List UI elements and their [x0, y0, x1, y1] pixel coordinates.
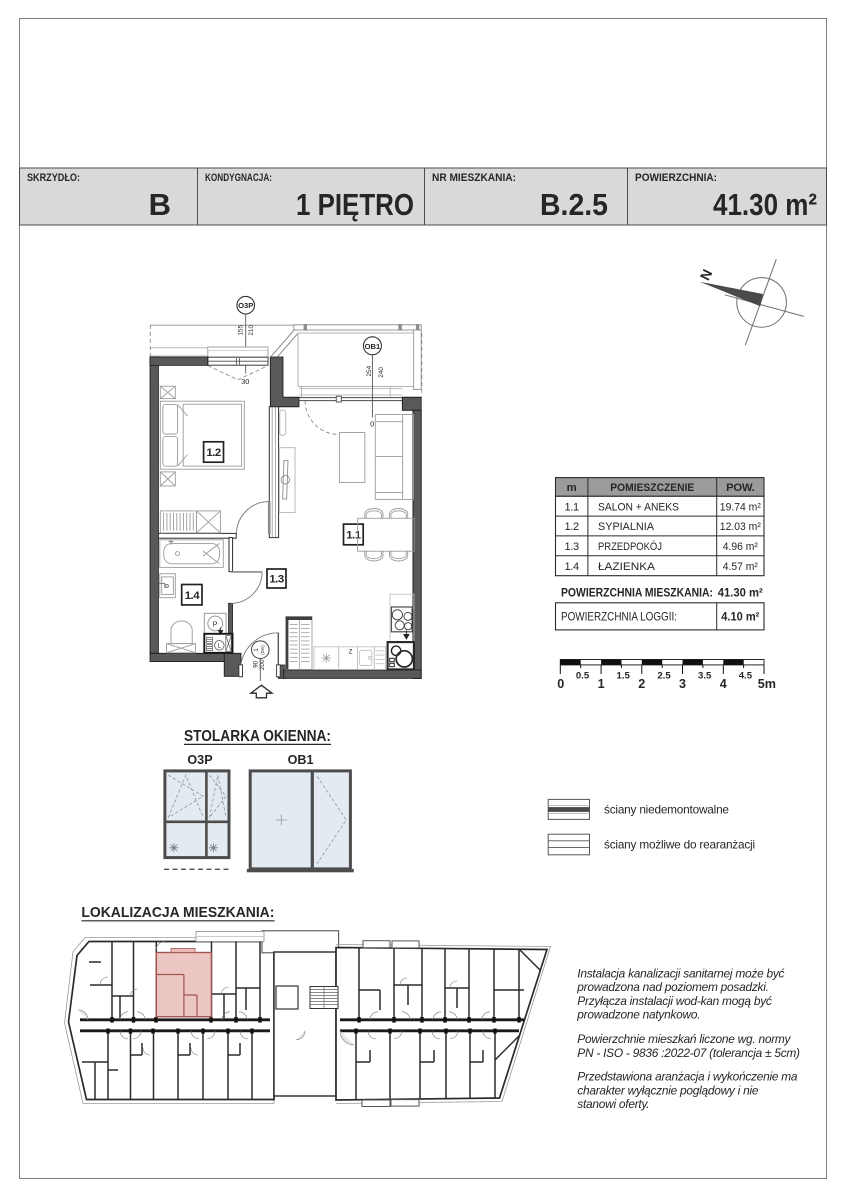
svg-text:210: 210 — [248, 325, 255, 336]
svg-text:3.5: 3.5 — [698, 671, 712, 682]
svg-text:1.2: 1.2 — [206, 447, 220, 459]
svg-text:4.10 m²: 4.10 m² — [721, 610, 759, 624]
svg-text:POWIERZCHNIA:: POWIERZCHNIA: — [635, 172, 717, 184]
svg-text:PN - ISO - 9836 :2022-07 (tole: PN - ISO - 9836 :2022-07 (tolerancja ± 5… — [577, 1046, 800, 1060]
svg-text:POW.: POW. — [726, 482, 754, 494]
svg-text:4.57 m²: 4.57 m² — [723, 561, 758, 573]
svg-text:41.30 m²: 41.30 m² — [713, 187, 817, 222]
svg-text:0: 0 — [370, 420, 374, 429]
svg-text:(Dm): (Dm) — [260, 645, 265, 655]
svg-text:19.74 m²: 19.74 m² — [720, 501, 761, 513]
svg-text:254: 254 — [366, 365, 373, 376]
svg-text:1.1: 1.1 — [564, 501, 579, 513]
svg-text:KONDYGNACJA:: KONDYGNACJA: — [205, 172, 272, 184]
svg-text:1.2: 1.2 — [564, 521, 579, 533]
svg-text:B.2.5: B.2.5 — [540, 187, 608, 222]
svg-text:P: P — [213, 620, 218, 629]
svg-text:4.96 m²: 4.96 m² — [723, 541, 758, 553]
svg-text:240: 240 — [378, 367, 385, 378]
svg-text:POMIESZCZENIE: POMIESZCZENIE — [610, 482, 694, 494]
svg-text:30: 30 — [241, 377, 249, 386]
svg-text:OB1: OB1 — [288, 753, 314, 767]
svg-text:155: 155 — [237, 325, 244, 336]
svg-text:2: 2 — [638, 677, 645, 691]
svg-text:Z: Z — [349, 650, 353, 656]
svg-text:B: B — [149, 187, 171, 222]
svg-text:3: 3 — [679, 677, 686, 691]
svg-text:LOKALIZACJA MIESZKANIA:: LOKALIZACJA MIESZKANIA: — [81, 905, 274, 921]
svg-text:m: m — [567, 482, 577, 494]
svg-text:5m: 5m — [758, 677, 776, 691]
svg-text:stanowi oferty.: stanowi oferty. — [577, 1097, 649, 1111]
svg-text:4.5: 4.5 — [739, 671, 753, 682]
svg-text:ściany możliwe do rearanżacji: ściany możliwe do rearanżacji — [604, 838, 755, 852]
svg-text:41.30 m²: 41.30 m² — [718, 586, 763, 600]
svg-text:SYPIALNIA: SYPIALNIA — [598, 521, 654, 533]
svg-text:STOLARKA OKIENNA:: STOLARKA OKIENNA: — [184, 728, 331, 745]
svg-text:1: 1 — [253, 648, 260, 652]
svg-text:1.1: 1.1 — [346, 530, 361, 542]
svg-text:2.5: 2.5 — [657, 671, 671, 682]
svg-text:Instalacja kanalizacji sanitar: Instalacja kanalizacji sanitarnej może b… — [577, 966, 784, 980]
svg-text:NR MIESZKANIA:: NR MIESZKANIA: — [432, 172, 516, 184]
svg-text:Powierzchnie mieszkań liczone: Powierzchnie mieszkań liczone wg. normy — [577, 1032, 791, 1046]
svg-text:POWIERZCHNIA LOGGII:: POWIERZCHNIA LOGGII: — [561, 610, 677, 624]
svg-text:SKRZYDŁO:: SKRZYDŁO: — [27, 172, 80, 184]
svg-text:1 PIĘTRO: 1 PIĘTRO — [296, 187, 414, 222]
svg-text:Przedstawiona aranżacja i wyko: Przedstawiona aranżacja i wykończenie ma — [577, 1070, 798, 1084]
svg-text:1.3: 1.3 — [564, 541, 579, 553]
svg-text:1.4: 1.4 — [185, 590, 200, 602]
svg-text:1.5: 1.5 — [617, 671, 631, 682]
svg-text:ŁAZIENKA: ŁAZIENKA — [598, 561, 655, 573]
svg-text:Przyłącza instalacji wod-kan m: Przyłącza instalacji wod-kan mogą być — [577, 994, 772, 1008]
svg-text:1.4: 1.4 — [564, 561, 579, 573]
svg-text:ściany niedemontowalne: ściany niedemontowalne — [604, 802, 729, 816]
svg-text:prowadzona nad poziomem posadz: prowadzona nad poziomem posadzki. — [576, 980, 768, 994]
svg-text:0.5: 0.5 — [576, 671, 590, 682]
svg-text:4: 4 — [720, 677, 727, 691]
svg-text:PRZEDPOKÓJ: PRZEDPOKÓJ — [598, 540, 662, 553]
svg-text:prowadzone natynkowo.: prowadzone natynkowo. — [576, 1008, 700, 1022]
svg-text:POWIERZCHNIA MIESZKANIA:: POWIERZCHNIA MIESZKANIA: — [561, 586, 713, 600]
svg-text:1: 1 — [598, 677, 605, 691]
svg-text:SALON + ANEKS: SALON + ANEKS — [598, 501, 679, 513]
svg-text:0: 0 — [557, 677, 564, 691]
svg-text:12.03 m²: 12.03 m² — [720, 521, 761, 533]
svg-text:1.3: 1.3 — [269, 574, 283, 586]
svg-text:O3P: O3P — [187, 753, 212, 767]
svg-text:O3P: O3P — [238, 301, 253, 310]
svg-text:OB1: OB1 — [365, 342, 381, 351]
svg-text:charakter wyłącznie poglądowy: charakter wyłącznie poglądowy i nie — [577, 1083, 759, 1097]
